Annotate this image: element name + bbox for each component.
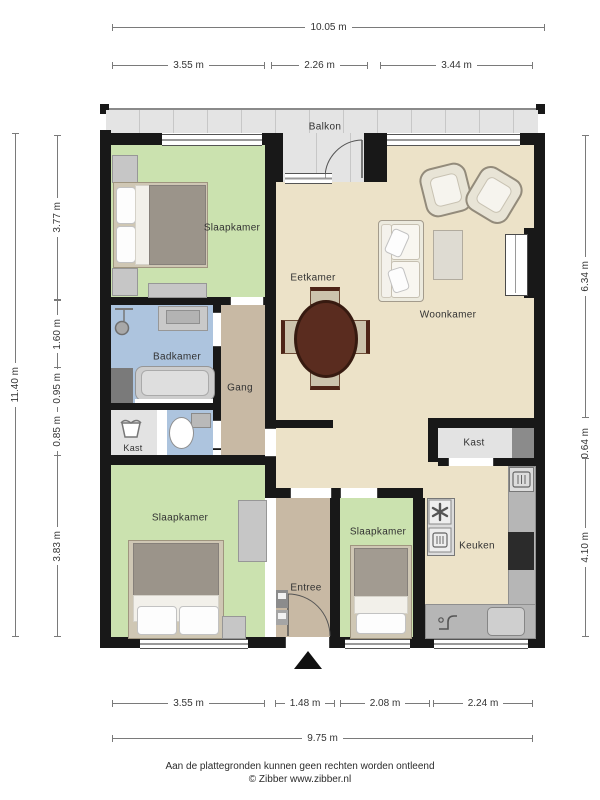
dim-bottom-seg2: 1.48 m [275, 696, 335, 710]
dim-right-seg3: 4.10 m [578, 458, 592, 637]
wall-bedroom1-right [265, 133, 276, 428]
dim-left-seg3: 0.95 m [50, 368, 64, 408]
hall-doorway [265, 428, 276, 457]
sink-basin [166, 310, 200, 324]
pillow [356, 613, 406, 634]
room-label-slaapkamer-2: Slaapkamer [152, 513, 208, 524]
front-door-swing [286, 593, 331, 638]
dim-top-seg2: 2.26 m [271, 58, 368, 72]
wall-recess-left [276, 133, 283, 182]
room-label-slaapkamer-1: Slaapkamer [204, 223, 260, 234]
hallway-floor [221, 305, 265, 455]
bedroom3-doorway [340, 488, 378, 498]
floorplan-canvas: 10.05 m 3.55 m 2.26 m 3.44 m 11.40 m 3.7… [0, 0, 600, 800]
bedroom1-doorway [230, 297, 264, 305]
nightstand [222, 616, 246, 639]
pillow [179, 606, 219, 635]
dim-left-seg2: 1.60 m [50, 300, 64, 368]
wall-hall-bottom-a [265, 488, 290, 498]
oven-icon [428, 527, 452, 553]
wall-entry-bedroom3 [330, 498, 340, 637]
wall-closet-right-top [428, 418, 534, 428]
dim-label: 1.60 m [52, 315, 63, 354]
dim-right-seg2: 0.64 m [578, 424, 592, 458]
wall-outer-left [100, 130, 111, 648]
armchair-cushion [429, 172, 463, 208]
disclaimer-line1: Aan de plattegronden kunnen geen rechten… [0, 760, 600, 773]
wall-hall-bottom-c [376, 488, 423, 498]
wall-bedroom2-top [100, 455, 265, 465]
room-label-eetkamer: Eetkamer [290, 273, 335, 284]
room-label-woonkamer: Woonkamer [420, 310, 476, 321]
pillow [116, 226, 136, 263]
dim-left-seg5: 3.83 m [50, 455, 64, 637]
closet-right-doorway [448, 458, 494, 466]
disclaimer: Aan de plattegronden kunnen geen rechten… [0, 760, 600, 786]
living-window [387, 134, 520, 146]
wall-bath-bottom [100, 403, 213, 410]
closet-right-shaft [512, 428, 534, 458]
dim-label: 11.40 m [10, 363, 21, 406]
room-label-slaapkamer-3: Slaapkamer [350, 527, 406, 538]
dim-label: 1.48 m [285, 698, 326, 709]
bed-blanket [133, 543, 219, 600]
dim-bottom-seg1: 3.55 m [112, 696, 265, 710]
balcony-door-swing [325, 137, 365, 182]
nightstand [112, 268, 138, 296]
radiator-line [515, 235, 516, 293]
dining-table [294, 300, 358, 378]
dim-top-seg3: 3.44 m [380, 58, 533, 72]
wc-door [157, 410, 167, 455]
dim-left-overall: 11.40 m [8, 133, 22, 637]
toilet-tank [191, 413, 211, 428]
dresser [148, 283, 207, 298]
intercom-unit [278, 613, 286, 619]
bed-sheet [354, 596, 408, 614]
dim-right-seg1: 6.34 m [578, 135, 592, 418]
wall-dining-stub [276, 420, 333, 428]
cooktop [508, 532, 534, 570]
dim-label: 2.08 m [365, 698, 406, 709]
dim-label: 0.64 m [580, 424, 591, 463]
bathroom-cabinet [111, 368, 133, 403]
pillow [116, 187, 136, 224]
toilet-icon [169, 417, 194, 449]
room-label-balkon: Balkon [309, 122, 341, 133]
dim-label: 3.77 m [52, 198, 63, 237]
kitchen-sink [487, 607, 525, 636]
dim-label: 0.85 m [52, 412, 63, 451]
wall-top-c [520, 133, 545, 145]
pillow [137, 606, 177, 635]
wc-doorway [213, 420, 221, 449]
shower-icon [111, 305, 139, 339]
bedroom3-window [345, 639, 410, 649]
wardrobe [238, 500, 267, 562]
wall-bedroom3-kitchen [413, 498, 425, 637]
dim-label: 6.34 m [580, 257, 591, 296]
wall-recess-right [364, 133, 387, 182]
bathtub-step [135, 399, 213, 403]
bed-blanket [354, 548, 408, 600]
armchair-cushion [474, 175, 513, 215]
wall-closet-right-left [428, 428, 438, 462]
kitchen-window [434, 639, 528, 649]
dim-left-seg1: 3.77 m [50, 135, 64, 300]
intercom-unit [278, 593, 286, 599]
dim-label: 9.75 m [302, 733, 343, 744]
faucet-icon [434, 608, 460, 634]
bathroom-doorway [213, 312, 221, 347]
dim-label: 3.83 m [52, 527, 63, 566]
entrance-arrow-icon [294, 651, 322, 669]
dim-top-seg1: 3.55 m [112, 58, 265, 72]
coffee-table [433, 230, 463, 280]
extractor-fan-icon [428, 499, 452, 525]
room-label-kast-right: Kast [463, 438, 484, 449]
laundry-basket-icon [116, 413, 146, 441]
entry-opening [290, 488, 332, 498]
dim-label: 3.44 m [436, 60, 477, 71]
dishwasher [509, 467, 534, 492]
wall-top-a [100, 133, 162, 145]
front-door-opening [285, 637, 330, 648]
dim-label: 2.24 m [463, 698, 504, 709]
bed-blanket [149, 185, 206, 265]
dim-left-seg4: 0.85 m [50, 408, 64, 455]
room-label-badkamer: Badkamer [153, 352, 201, 363]
dim-label: 4.10 m [580, 528, 591, 567]
dim-label: 2.26 m [299, 60, 340, 71]
dim-label: 3.55 m [168, 60, 209, 71]
nightstand [112, 155, 138, 183]
dishwasher-icon [510, 468, 533, 491]
room-label-gang: Gang [227, 383, 253, 394]
radiator [505, 234, 528, 296]
room-label-kast-left: Kast [123, 443, 142, 453]
dim-bottom-seg3: 2.08 m [340, 696, 430, 710]
room-label-entree: Entree [290, 583, 321, 594]
dim-label: 0.95 m [52, 369, 63, 408]
disclaimer-line2: © Zibber www.zibber.nl [0, 773, 600, 786]
bedroom1-window [162, 134, 262, 146]
dim-top-overall: 10.05 m [112, 20, 545, 34]
dim-label: 10.05 m [305, 22, 351, 33]
dim-bottom-seg4: 2.24 m [433, 696, 533, 710]
bathtub-inner [141, 370, 209, 396]
room-label-keuken: Keuken [459, 541, 495, 552]
dim-label: 3.55 m [168, 698, 209, 709]
bedroom2-window [140, 639, 248, 649]
dim-bottom-overall: 9.75 m [112, 731, 533, 745]
